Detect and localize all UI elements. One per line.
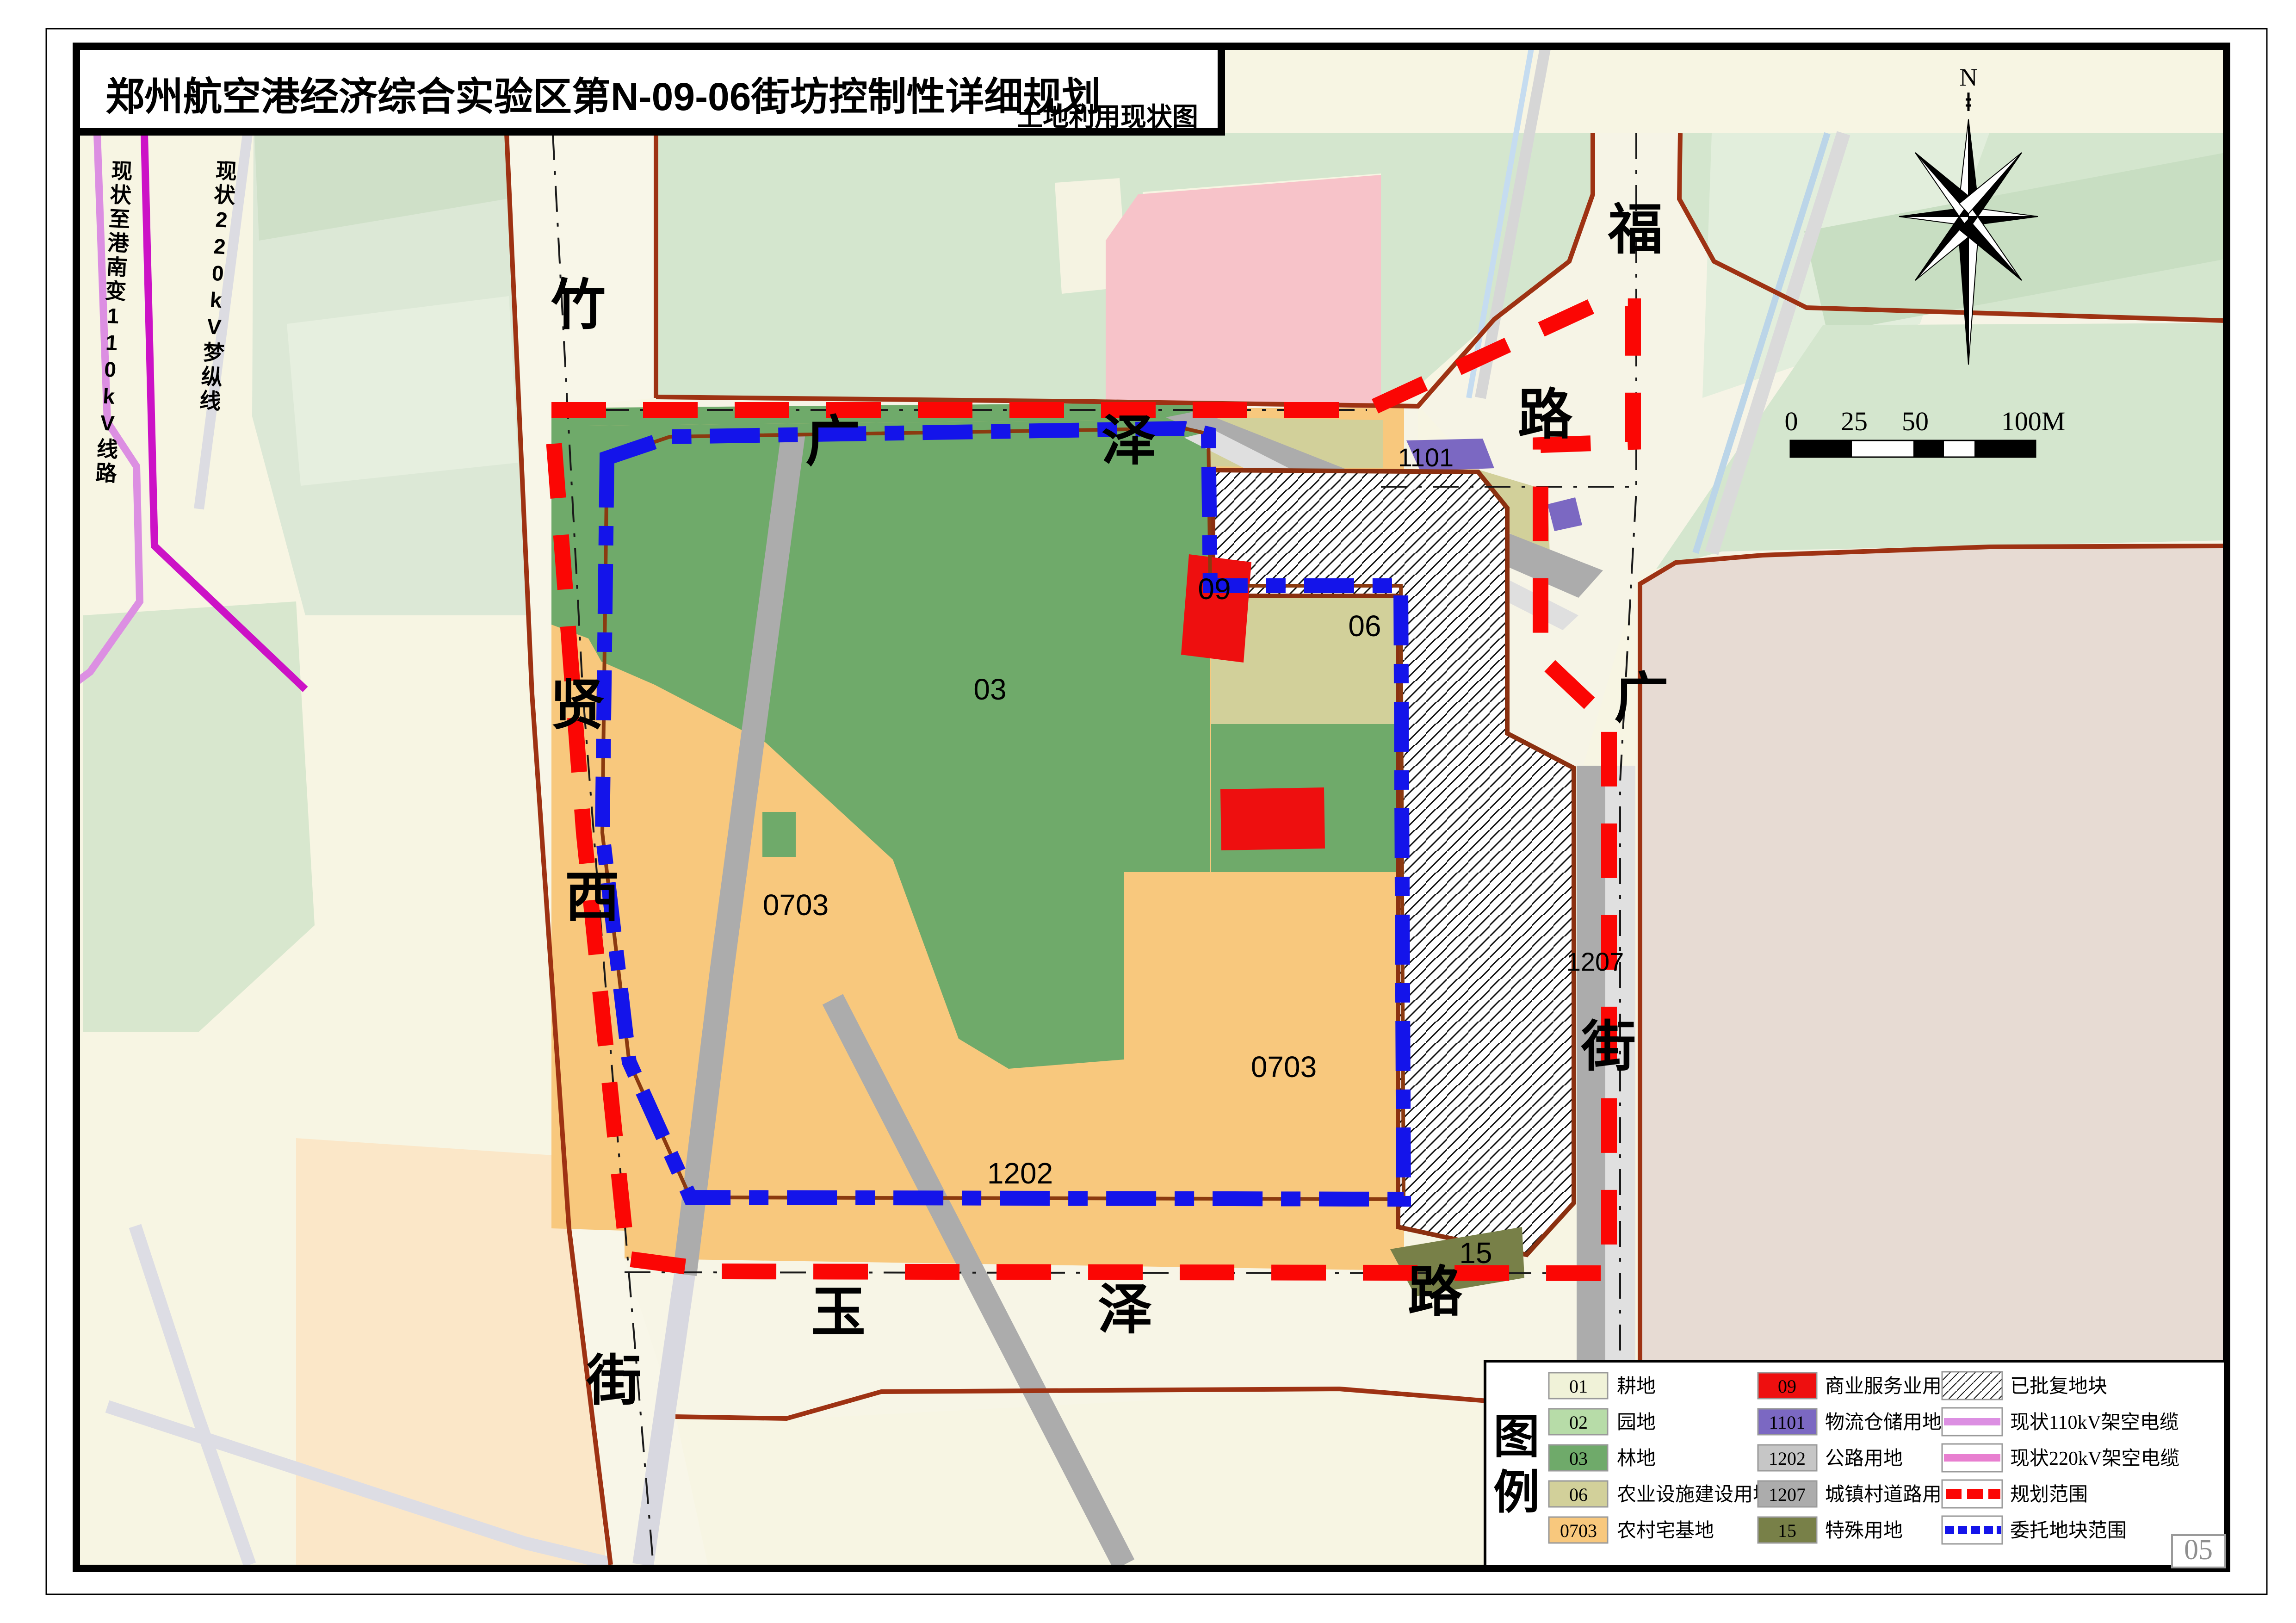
legend-label-1101: 物流仓储用地: [1825, 1412, 1942, 1433]
legend-label-01: 耕地: [1617, 1376, 1656, 1397]
legend-code-1202: 1202: [1769, 1448, 1806, 1469]
map-canvas: 现状至港南变110kV线路 现状220kV梦纵线 竹 贤 西 街 广 泽 路 玉…: [0, 0, 2296, 1623]
street-label-ze1: 泽: [1102, 410, 1156, 471]
legend-label-09: 商业服务业用地: [1825, 1376, 1961, 1397]
page-number-box: 05: [2172, 1534, 2225, 1567]
legend-code-03: 03: [1569, 1448, 1588, 1469]
legend-item: 15 特殊用地: [1758, 1517, 1903, 1543]
zone-09-parcel1: [1181, 554, 1251, 663]
legend-label-1202: 公路用地: [1825, 1448, 1903, 1469]
legend-title-char2: 例: [1493, 1467, 1540, 1518]
page-title: 郑州航空港经济综合实验区第N-09-06街坊控制性详细规划: [105, 75, 1101, 118]
field-nw-band2: [287, 296, 518, 486]
title-box: 郑州航空港经济综合实验区第N-09-06街坊控制性详细规划 土地利用现状图: [76, 46, 1221, 132]
legend-label-0703: 农村宅基地: [1617, 1520, 1714, 1542]
street-label-yu: 玉: [811, 1282, 866, 1343]
legend-code-15: 15: [1778, 1520, 1796, 1541]
zone-label-1101: 1101: [1398, 443, 1454, 472]
zone-label-0703-left: 0703: [763, 888, 829, 922]
scale-label-50: 50: [1902, 406, 1929, 436]
legend-label-approved: 已批复地块: [2010, 1376, 2107, 1397]
legend-item: 1202 公路用地: [1758, 1445, 1903, 1471]
zone-label-09: 09: [1198, 572, 1231, 606]
legend-swatch-approved-hatch: [1942, 1372, 2002, 1400]
legend-label-planning: 规划范围: [2010, 1484, 2088, 1505]
zone-label-03: 03: [973, 673, 1006, 706]
zone-label-06: 06: [1348, 609, 1381, 643]
legend-label-03: 林地: [1617, 1448, 1656, 1469]
street-label-lu1: 路: [1518, 384, 1573, 446]
legend-code-1101: 1101: [1769, 1412, 1806, 1433]
zone-label-1202: 1202: [987, 1157, 1053, 1190]
street-label-guang2: 广: [1614, 668, 1669, 729]
legend-label-110kv: 现状110kV架空电缆: [2010, 1412, 2179, 1433]
legend-label-15: 特殊用地: [1825, 1520, 1903, 1542]
legend-item: 现状220kV架空电缆: [1942, 1444, 2179, 1472]
legend-label-1207: 城镇村道路用地: [1825, 1484, 1961, 1505]
legend-item: 0703 农村宅基地: [1549, 1517, 1714, 1543]
legend-code-1207: 1207: [1769, 1484, 1806, 1505]
legend-item: 09 商业服务业用地: [1758, 1373, 1961, 1399]
street-label-ze2: 泽: [1098, 1279, 1152, 1340]
street-label-jie2: 街: [1581, 1016, 1636, 1078]
compass-north-label: N: [1960, 63, 1978, 91]
legend-item: 06 农业设施建设用地: [1549, 1481, 1772, 1507]
street-label-jie: 街: [586, 1350, 641, 1412]
legend-item: 03 林地: [1549, 1445, 1656, 1471]
street-label-lu2: 路: [1408, 1262, 1463, 1323]
legend-code-01: 01: [1569, 1376, 1588, 1397]
zone-03-small: [762, 812, 796, 857]
scale-label-0: 0: [1785, 406, 1798, 436]
legend-code-06: 06: [1569, 1484, 1588, 1505]
street-label-xian: 贤: [550, 675, 605, 736]
legend-label-220kv: 现状220kV架空电缆: [2010, 1448, 2179, 1469]
zone-label-0703-right: 0703: [1251, 1050, 1317, 1084]
legend-code-02: 02: [1569, 1412, 1588, 1433]
legend-dash-red: [1946, 1489, 2000, 1499]
page-subtitle: 土地利用现状图: [1017, 102, 1198, 131]
legend-line-220kv: [1944, 1454, 2000, 1462]
legend-item: 规划范围: [1942, 1480, 2088, 1508]
street-label-guang1: 广: [805, 411, 860, 472]
legend-item: 已批复地块: [1942, 1372, 2107, 1400]
page-number: 05: [2184, 1534, 2213, 1566]
scale-label-100m: 100M: [2001, 406, 2066, 436]
legend-label-02: 园地: [1617, 1412, 1656, 1433]
zone-09-parcel2: [1220, 787, 1325, 850]
legend-item: 02 园地: [1549, 1409, 1656, 1435]
legend-code-0703: 0703: [1560, 1520, 1597, 1541]
legend-item: 1101 物流仓储用地: [1758, 1409, 1942, 1435]
legend-item: 1207 城镇村道路用地: [1758, 1481, 1961, 1507]
legend-code-09: 09: [1778, 1376, 1796, 1397]
map-content: 现状至港南变110kV线路 现状220kV梦纵线 竹 贤 西 街 广 泽 路 玉…: [76, 46, 2228, 1569]
street-label-fu: 福: [1608, 199, 1663, 260]
legend: 图 例 01 耕地 02 园地 03 林地 06 农业设施建设用地: [1485, 1361, 2225, 1567]
legend-item: 现状110kV架空电缆: [1942, 1408, 2179, 1436]
zone-label-15: 15: [1459, 1236, 1492, 1270]
zone-label-1207: 1207: [1566, 947, 1624, 976]
legend-item: 委托地块范围: [1942, 1516, 2127, 1544]
pink-parcel: [1106, 175, 1381, 406]
legend-item: 01 耕地: [1549, 1373, 1656, 1399]
street-label-zhu: 竹: [551, 275, 606, 336]
legend-label-delegate: 委托地块范围: [2010, 1520, 2127, 1542]
legend-dash-blue: [1945, 1526, 2001, 1534]
legend-title-char1: 图: [1493, 1412, 1540, 1463]
street-label-xi: 西: [565, 867, 619, 928]
legend-label-06: 农业设施建设用地: [1617, 1484, 1772, 1505]
legend-line-110kv: [1944, 1418, 2000, 1425]
scale-label-25: 25: [1841, 406, 1868, 436]
plan-sheet: 现状至港南变110kV线路 现状220kV梦纵线 竹 贤 西 街 广 泽 路 玉…: [0, 0, 2296, 1623]
